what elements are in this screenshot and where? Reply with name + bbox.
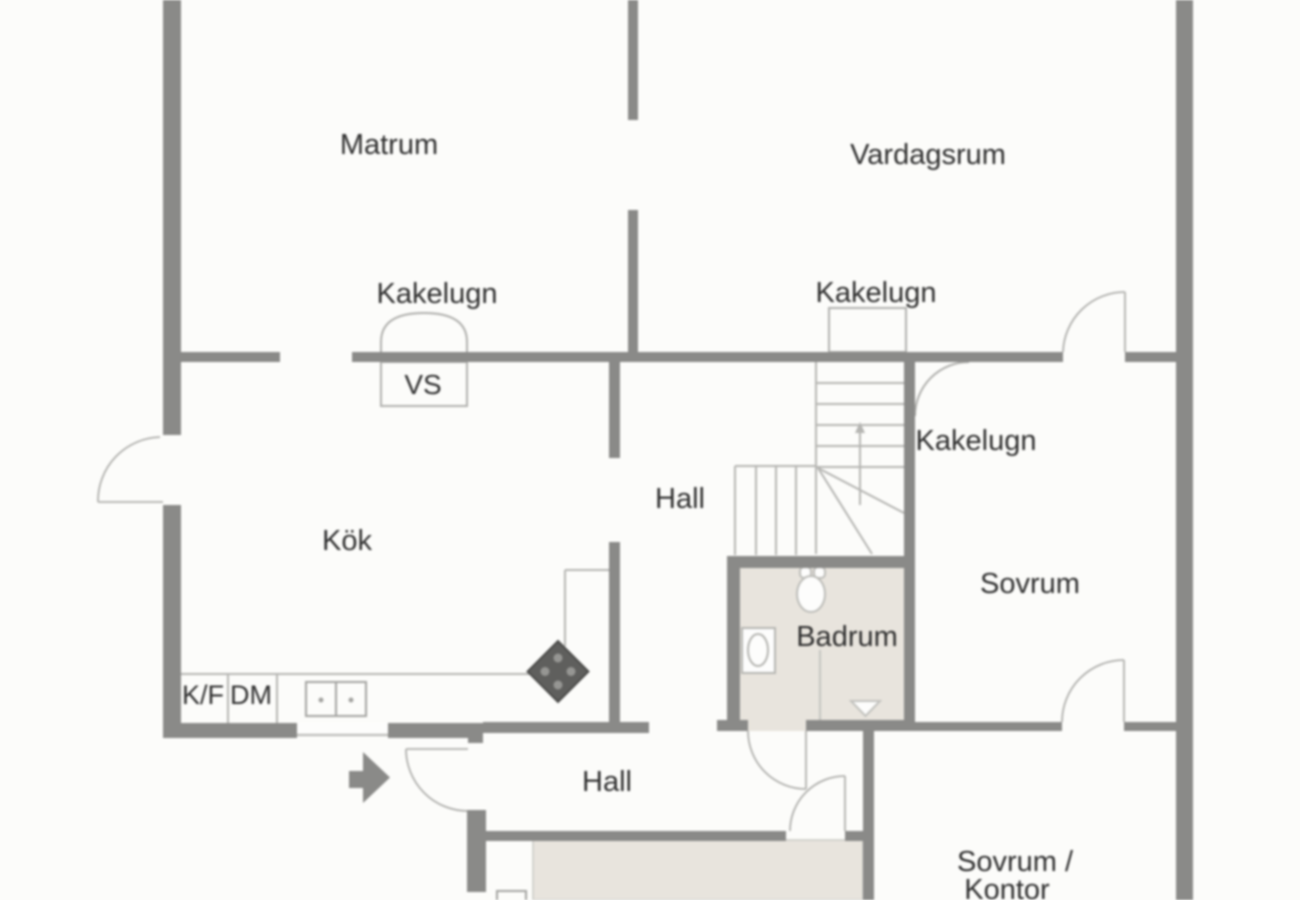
svg-text:Kök: Kök bbox=[322, 525, 372, 557]
svg-text:K/F: K/F bbox=[182, 680, 224, 710]
svg-text:VS: VS bbox=[404, 369, 441, 400]
svg-text:Hall: Hall bbox=[655, 483, 705, 515]
svg-text:Kontor: Kontor bbox=[964, 874, 1050, 900]
svg-text:Kakelugn: Kakelugn bbox=[377, 278, 498, 310]
svg-text:Badrum: Badrum bbox=[796, 621, 898, 653]
svg-text:Matrum: Matrum bbox=[340, 129, 438, 161]
svg-text:Kakelugn: Kakelugn bbox=[816, 277, 937, 309]
svg-text:Kakelugn: Kakelugn bbox=[916, 425, 1037, 457]
svg-text:Sovrum: Sovrum bbox=[980, 568, 1080, 600]
svg-text:Vardagsrum: Vardagsrum bbox=[850, 139, 1006, 171]
svg-text:DM: DM bbox=[230, 680, 272, 710]
svg-text:Hall: Hall bbox=[582, 766, 632, 798]
